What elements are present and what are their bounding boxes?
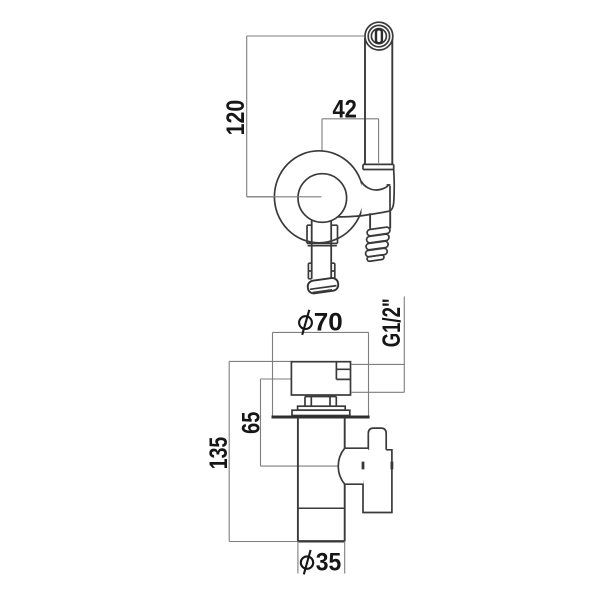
svg-text:65: 65: [238, 412, 266, 434]
svg-text:120: 120: [222, 100, 250, 136]
svg-text:135: 135: [205, 437, 233, 469]
svg-text:70: 70: [314, 309, 343, 337]
svg-text:35: 35: [316, 549, 342, 577]
svg-text:G1/2": G1/2": [378, 298, 406, 347]
svg-text:42: 42: [332, 96, 357, 124]
